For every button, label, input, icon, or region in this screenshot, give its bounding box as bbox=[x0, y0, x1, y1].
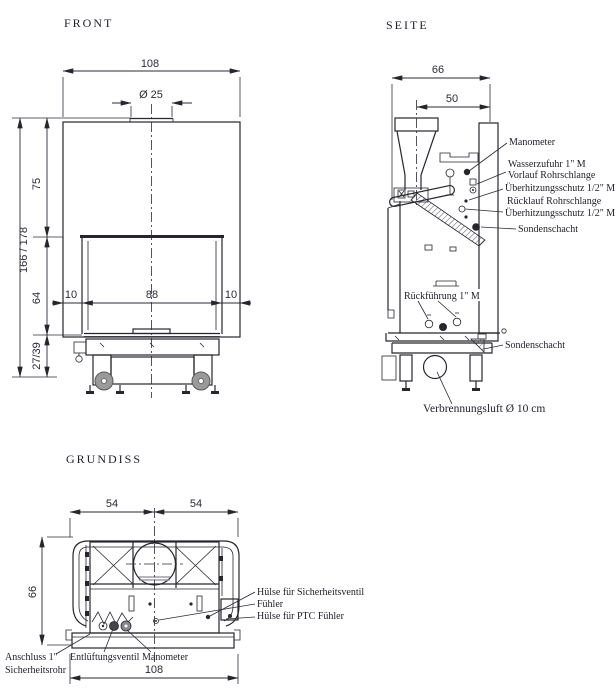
label-vorlauf: Vorlauf Rohrschlange bbox=[508, 170, 596, 181]
grundiss-dim-right-half: 54 bbox=[190, 498, 202, 510]
seite-return-ports bbox=[425, 313, 461, 331]
label-ruecklauf: Rücklauf Rohrschlange bbox=[507, 196, 602, 207]
label-verbrennungsluft: Verbrennungsluft Ø 10 cm bbox=[423, 403, 545, 415]
seite-dim-depth: 66 bbox=[432, 64, 444, 76]
seite-view: SEITE 66 50 bbox=[382, 18, 615, 415]
label-wasserzufuhr: Wasserzufuhr 1" M bbox=[508, 159, 586, 170]
grundiss-dim-left-half: 54 bbox=[106, 498, 118, 510]
grundiss-labels: Hülse für Sicherheitsventil Fühler Hülse… bbox=[5, 587, 364, 676]
front-title: FRONT bbox=[64, 16, 113, 30]
sonde-port bbox=[472, 223, 480, 231]
seite-labels: Manometer Wasserzufuhr 1" M Vorlauf Rohr… bbox=[402, 137, 615, 415]
front-dim-base: 27/39 bbox=[31, 342, 43, 370]
grundiss-view: GRUNDISS 54 54 66 108 bbox=[5, 452, 364, 684]
grundiss-base-plate bbox=[66, 630, 240, 648]
label-ueberhitz1: Überhitzungsschutz 1/2" M bbox=[505, 182, 615, 194]
front-dim-width: 108 bbox=[141, 58, 159, 70]
front-firebox bbox=[80, 237, 224, 337]
front-dim-left-gap: 10 bbox=[65, 289, 77, 301]
front-dim-right-gap: 10 bbox=[225, 289, 237, 301]
label-sondenschacht-2: Sondenschacht bbox=[505, 340, 565, 351]
label-sicherheitsrohr: Sicherheitsrohr bbox=[5, 665, 67, 676]
front-dim-door: 64 bbox=[31, 292, 43, 304]
front-dim-total: 166 / 178 bbox=[18, 227, 30, 273]
label-ueberhitz2: Überhitzungsschutz 1/2" M bbox=[505, 207, 615, 219]
front-body bbox=[63, 104, 240, 398]
seite-dim-body: 50 bbox=[446, 93, 458, 105]
label-huelse-ptc: Hülse für PTC Fühler bbox=[257, 611, 345, 622]
grundiss-columns bbox=[85, 545, 223, 628]
front-dim-stub: Ø 25 bbox=[139, 89, 163, 101]
front-dim-upper: 75 bbox=[31, 178, 43, 190]
front-drain-valve bbox=[76, 356, 82, 362]
seite-title: SEITE bbox=[386, 18, 429, 32]
entlueftungsventil-port bbox=[110, 622, 119, 631]
front-dim-left: 166 / 178 75 64 27/39 bbox=[12, 118, 131, 377]
sondenschacht-lower bbox=[471, 339, 484, 352]
front-base bbox=[74, 339, 219, 394]
label-sondenschacht-1: Sondenschacht bbox=[518, 224, 578, 235]
label-manometer: Manometer bbox=[509, 137, 556, 148]
label-rueckfuehrung: Rückführung 1" M bbox=[404, 291, 480, 302]
drawing-canvas: FRONT 108 Ø 25 bbox=[0, 0, 616, 692]
technical-drawing-sheet: FRONT 108 Ø 25 bbox=[0, 0, 616, 692]
front-dim-glass: 88 bbox=[146, 289, 158, 301]
front-view: FRONT 108 Ø 25 bbox=[12, 16, 251, 398]
seite-base bbox=[382, 333, 498, 391]
label-huelse-sicherheitsventil: Hülse für Sicherheitsventil bbox=[257, 587, 364, 598]
manometer-port bbox=[464, 169, 470, 175]
grundiss-dim-depth: 66 bbox=[27, 586, 39, 598]
label-manometer-plan: Manometer bbox=[142, 652, 189, 663]
combustion-air-duct bbox=[424, 356, 447, 379]
grundiss-valves bbox=[92, 612, 133, 631]
label-fuehler: Fühler bbox=[257, 599, 284, 610]
label-entlueftungsventil: Entlüftungsventil bbox=[70, 652, 140, 663]
label-anschluss: Anschluss 1" bbox=[5, 652, 58, 663]
grundiss-title: GRUNDISS bbox=[66, 452, 142, 466]
grundiss-dim-width: 108 bbox=[145, 664, 163, 676]
